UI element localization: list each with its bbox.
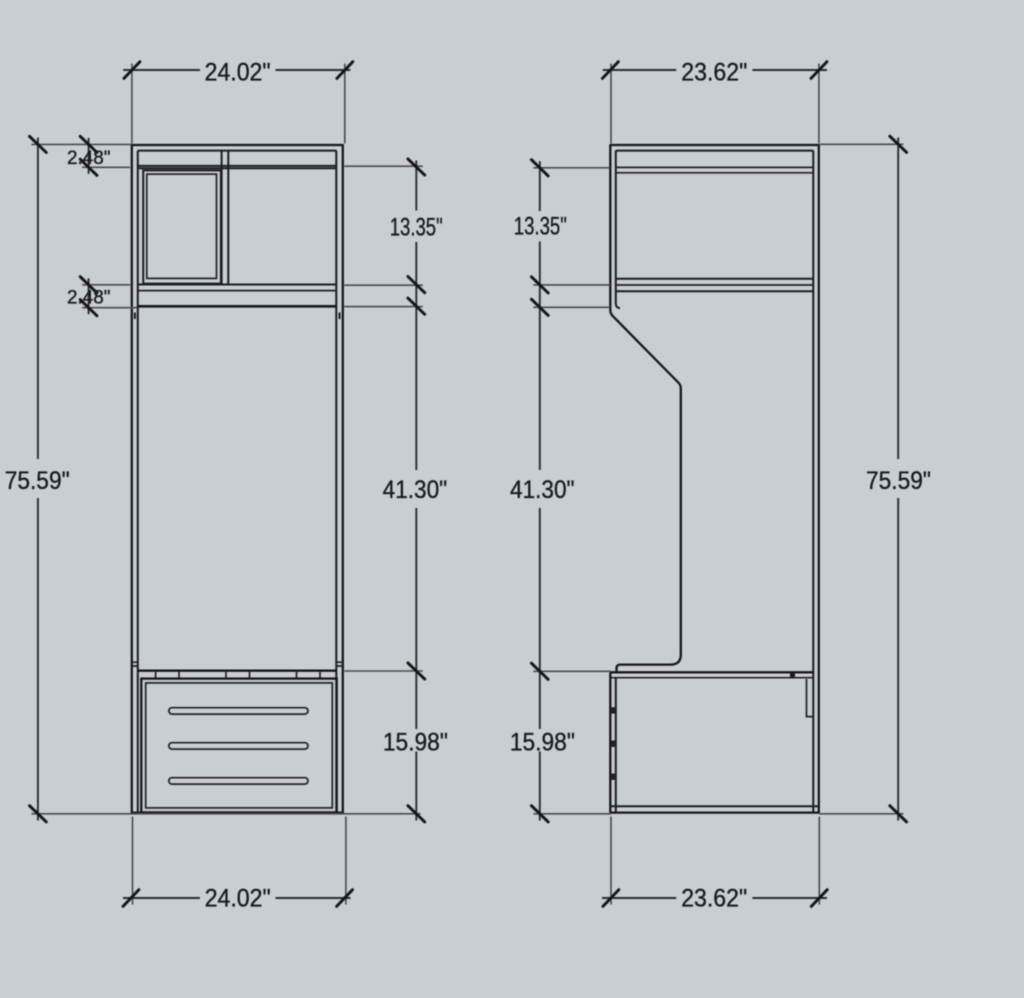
svg-text:41.30": 41.30" [383,476,448,504]
svg-text:13.35": 13.35" [514,213,567,241]
svg-text:24.02": 24.02" [205,59,271,87]
svg-text:15.98": 15.98" [383,729,448,757]
svg-text:23.62": 23.62" [681,59,747,87]
svg-text:75.59": 75.59" [5,467,70,495]
svg-text:15.98": 15.98" [510,729,575,757]
svg-text:2.48": 2.48" [67,148,111,169]
svg-text:13.35": 13.35" [390,213,443,241]
svg-text:24.02": 24.02" [205,885,271,913]
svg-text:41.30": 41.30" [510,476,575,504]
svg-text:23.62": 23.62" [681,885,747,913]
svg-text:2.48": 2.48" [67,288,111,309]
svg-text:75.59": 75.59" [866,467,931,495]
